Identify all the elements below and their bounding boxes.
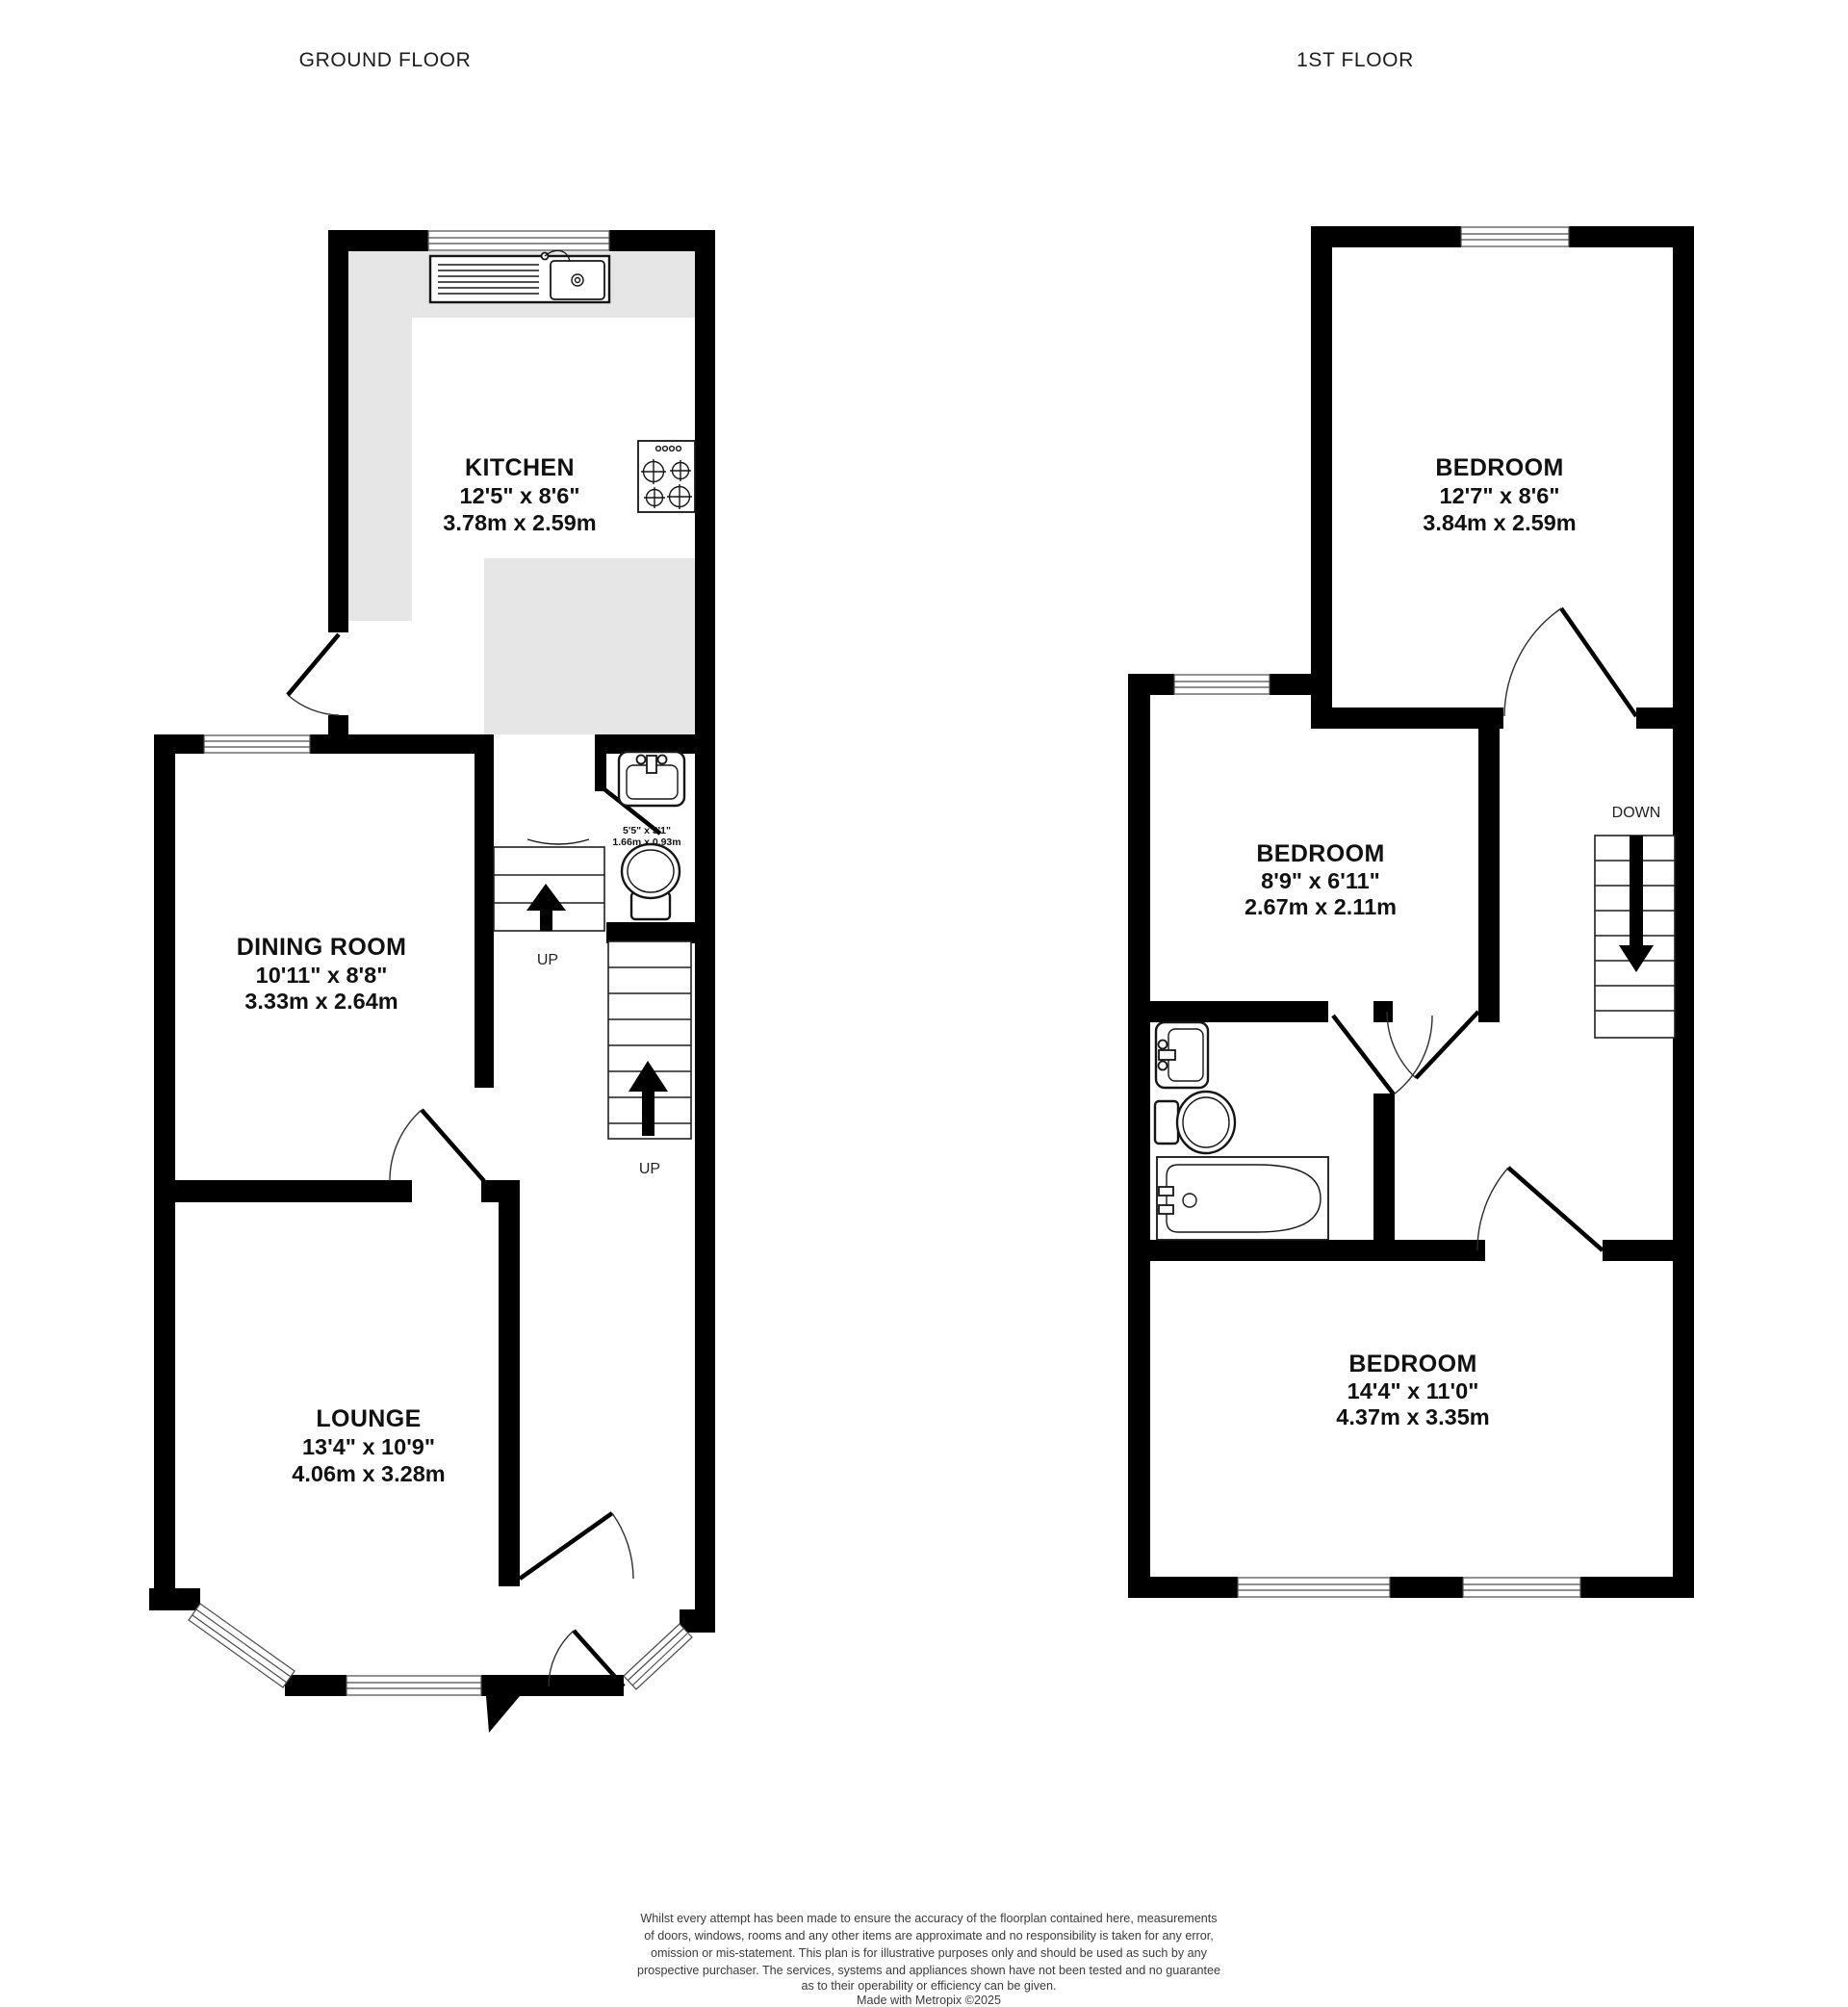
dining-room-size-metric: 3.33m x 2.64m <box>244 989 398 1014</box>
bedroom1-size-imperial: 12'7" x 8'6" <box>1440 483 1560 508</box>
disclaimer-line: prospective purchaser. The services, sys… <box>637 1964 1220 1977</box>
bedroom3-window-left <box>1238 1578 1390 1597</box>
lounge-size-metric: 4.06m x 3.28m <box>292 1461 445 1486</box>
dining-door <box>390 1110 484 1181</box>
lounge-label: LOUNGE <box>316 1405 421 1432</box>
bathroom-basin-icon <box>1156 1022 1208 1088</box>
bathroom-toilet-icon <box>1155 1092 1235 1153</box>
bathroom-door <box>1333 1016 1432 1094</box>
stove-icon <box>638 441 695 512</box>
bedroom3-door <box>1477 1168 1603 1250</box>
dining-window <box>204 735 310 753</box>
bedroom1-label: BEDROOM <box>1435 454 1563 481</box>
bedroom2-size-metric: 2.67m x 2.11m <box>1245 894 1397 919</box>
wc-size-imperial: 5'5" x 3'1" <box>623 825 671 836</box>
bedroom2-label: BEDROOM <box>1256 840 1384 867</box>
metropix-credit: Made with Metropix ©2025 <box>857 1994 1001 2007</box>
lounge-size-imperial: 13'4" x 10'9" <box>302 1434 435 1459</box>
stairs-upper-flight <box>608 941 691 1139</box>
floorplan-drawing: GROUND FLOOR <box>0 0 1848 2007</box>
wc-size-metric: 1.66m x 0.93m <box>612 836 680 848</box>
floorplan-page: GROUND FLOOR <box>0 0 1848 2007</box>
ground-floor-plan: GROUND FLOOR <box>149 49 715 1733</box>
bedroom2-window <box>1174 675 1270 694</box>
disclaimer: Whilst every attempt has been made to en… <box>637 1912 1220 2007</box>
wc-toilet-icon <box>622 844 680 919</box>
first-floor-labels: BEDROOM 12'7" x 8'6" 3.84m x 2.59m BEDRO… <box>1245 454 1577 1429</box>
bedroom2-size-imperial: 8'9" x 6'11" <box>1261 868 1380 893</box>
disclaimer-line: Whilst every attempt has been made to en… <box>640 1912 1217 1925</box>
kitchen-size-metric: 3.78m x 2.59m <box>443 510 596 535</box>
wc-basin-icon <box>619 752 684 806</box>
kitchen-sink-icon <box>430 250 609 302</box>
bathtub-icon <box>1157 1157 1328 1240</box>
first-floor-plan: 1ST FLOOR <box>1128 49 1694 1598</box>
front-door-swing <box>486 1696 520 1733</box>
disclaimer-line: of doors, windows, rooms and any other i… <box>644 1929 1214 1943</box>
bedroom3-size-imperial: 14'4" x 11'0" <box>1347 1378 1479 1403</box>
disclaimer-line: omission or mis-statement. This plan is … <box>651 1946 1208 1960</box>
down-label: DOWN <box>1612 805 1661 821</box>
bedroom3-window-right <box>1463 1578 1580 1597</box>
bedroom1-door <box>1504 608 1636 716</box>
dining-room-label: DINING ROOM <box>237 934 407 961</box>
bedroom1-window <box>1461 227 1569 246</box>
dining-room-size-imperial: 10'11" x 8'8" <box>256 963 388 988</box>
kitchen-label: KITCHEN <box>465 454 575 481</box>
kitchen-door <box>288 634 339 715</box>
stairs-lower-flight <box>494 847 604 931</box>
first-floor-stairs: DOWN <box>1595 805 1675 1038</box>
lounge-door <box>520 1513 633 1579</box>
bedroom3-label: BEDROOM <box>1348 1351 1476 1377</box>
disclaimer-line: as to their operability or efficiency ca… <box>801 1979 1056 1993</box>
bedroom1-size-metric: 3.84m x 2.59m <box>1423 510 1576 535</box>
kitchen-window <box>428 231 609 250</box>
first-floor-title: 1ST FLOOR <box>1296 49 1414 71</box>
wc-leader-line <box>527 839 589 844</box>
up-label-upper: UP <box>639 1161 660 1177</box>
kitchen-size-imperial: 12'5" x 8'6" <box>460 483 580 508</box>
bedroom3-size-metric: 4.37m x 3.35m <box>1336 1404 1489 1429</box>
ground-floor-title: GROUND FLOOR <box>299 49 472 71</box>
up-label-lower: UP <box>537 952 558 968</box>
